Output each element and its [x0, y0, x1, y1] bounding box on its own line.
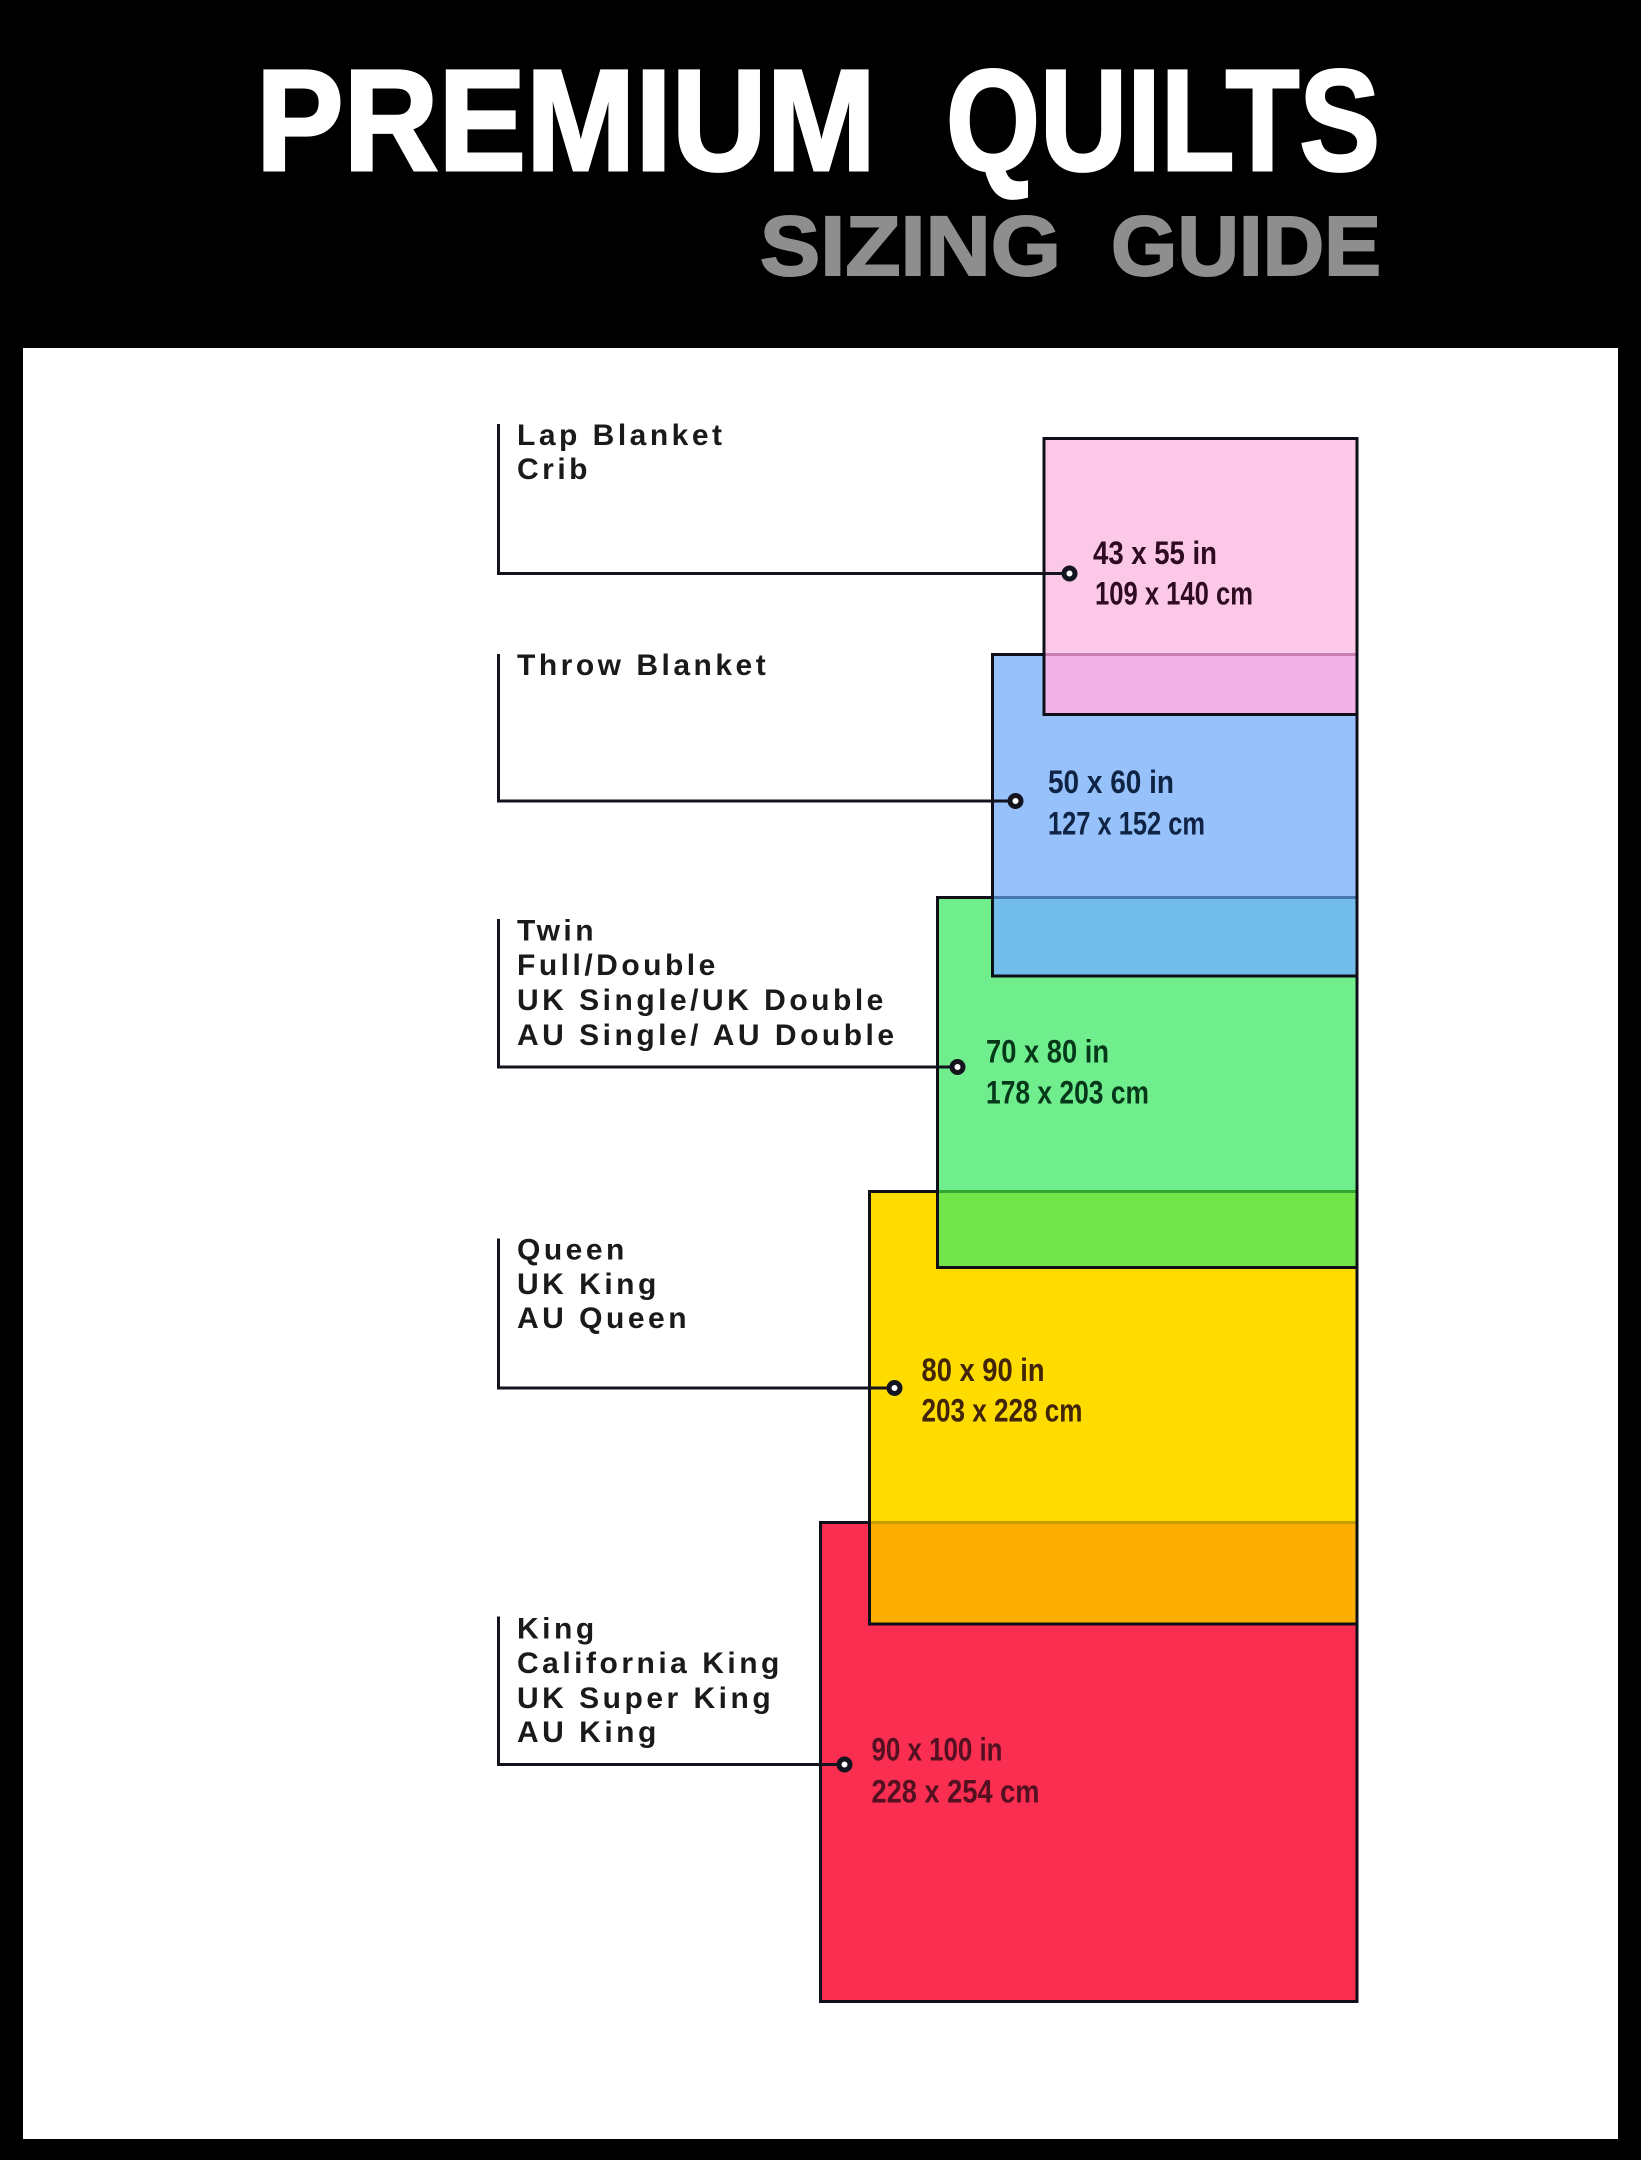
- svg-text:Crib: Crib: [517, 453, 591, 486]
- svg-text:AU Single/ AU Double: AU Single/ AU Double: [517, 1019, 898, 1052]
- svg-text:AU Queen: AU Queen: [517, 1302, 690, 1335]
- svg-text:80 x 90 in: 80 x 90 in: [922, 1352, 1045, 1388]
- svg-text:203 x 228 cm: 203 x 228 cm: [922, 1393, 1083, 1429]
- svg-text:109 x 140 cm: 109 x 140 cm: [1095, 576, 1253, 612]
- svg-text:178 x 203 cm: 178 x 203 cm: [986, 1075, 1149, 1111]
- svg-text:King: King: [517, 1613, 598, 1646]
- svg-text:Throw Blanket: Throw Blanket: [517, 649, 769, 682]
- svg-text:QUILTS: QUILTS: [946, 40, 1380, 201]
- svg-text:AU King: AU King: [517, 1716, 660, 1749]
- svg-text:Full/Double: Full/Double: [517, 949, 719, 982]
- svg-text:UK Single/UK Double: UK Single/UK Double: [517, 984, 887, 1017]
- svg-text:SIZING: SIZING: [760, 199, 1061, 293]
- svg-text:90 x 100 in: 90 x 100 in: [872, 1732, 1003, 1768]
- svg-text:Queen: Queen: [517, 1234, 628, 1267]
- svg-text:UK King: UK King: [517, 1268, 660, 1301]
- svg-text:California King: California King: [517, 1647, 783, 1680]
- svg-text:43 x 55 in: 43 x 55 in: [1093, 535, 1217, 571]
- svg-text:Twin: Twin: [517, 915, 597, 948]
- svg-text:GUIDE: GUIDE: [1111, 199, 1381, 293]
- svg-text:228 x 254 cm: 228 x 254 cm: [872, 1774, 1040, 1810]
- svg-text:Lap Blanket: Lap Blanket: [517, 419, 726, 452]
- svg-text:127 x 152 cm: 127 x 152 cm: [1048, 806, 1205, 842]
- svg-text:PREMIUM: PREMIUM: [256, 40, 876, 201]
- svg-text:70 x 80 in: 70 x 80 in: [986, 1034, 1109, 1070]
- svg-text:50 x 60 in: 50 x 60 in: [1048, 764, 1174, 800]
- svg-text:UK Super King: UK Super King: [517, 1682, 774, 1715]
